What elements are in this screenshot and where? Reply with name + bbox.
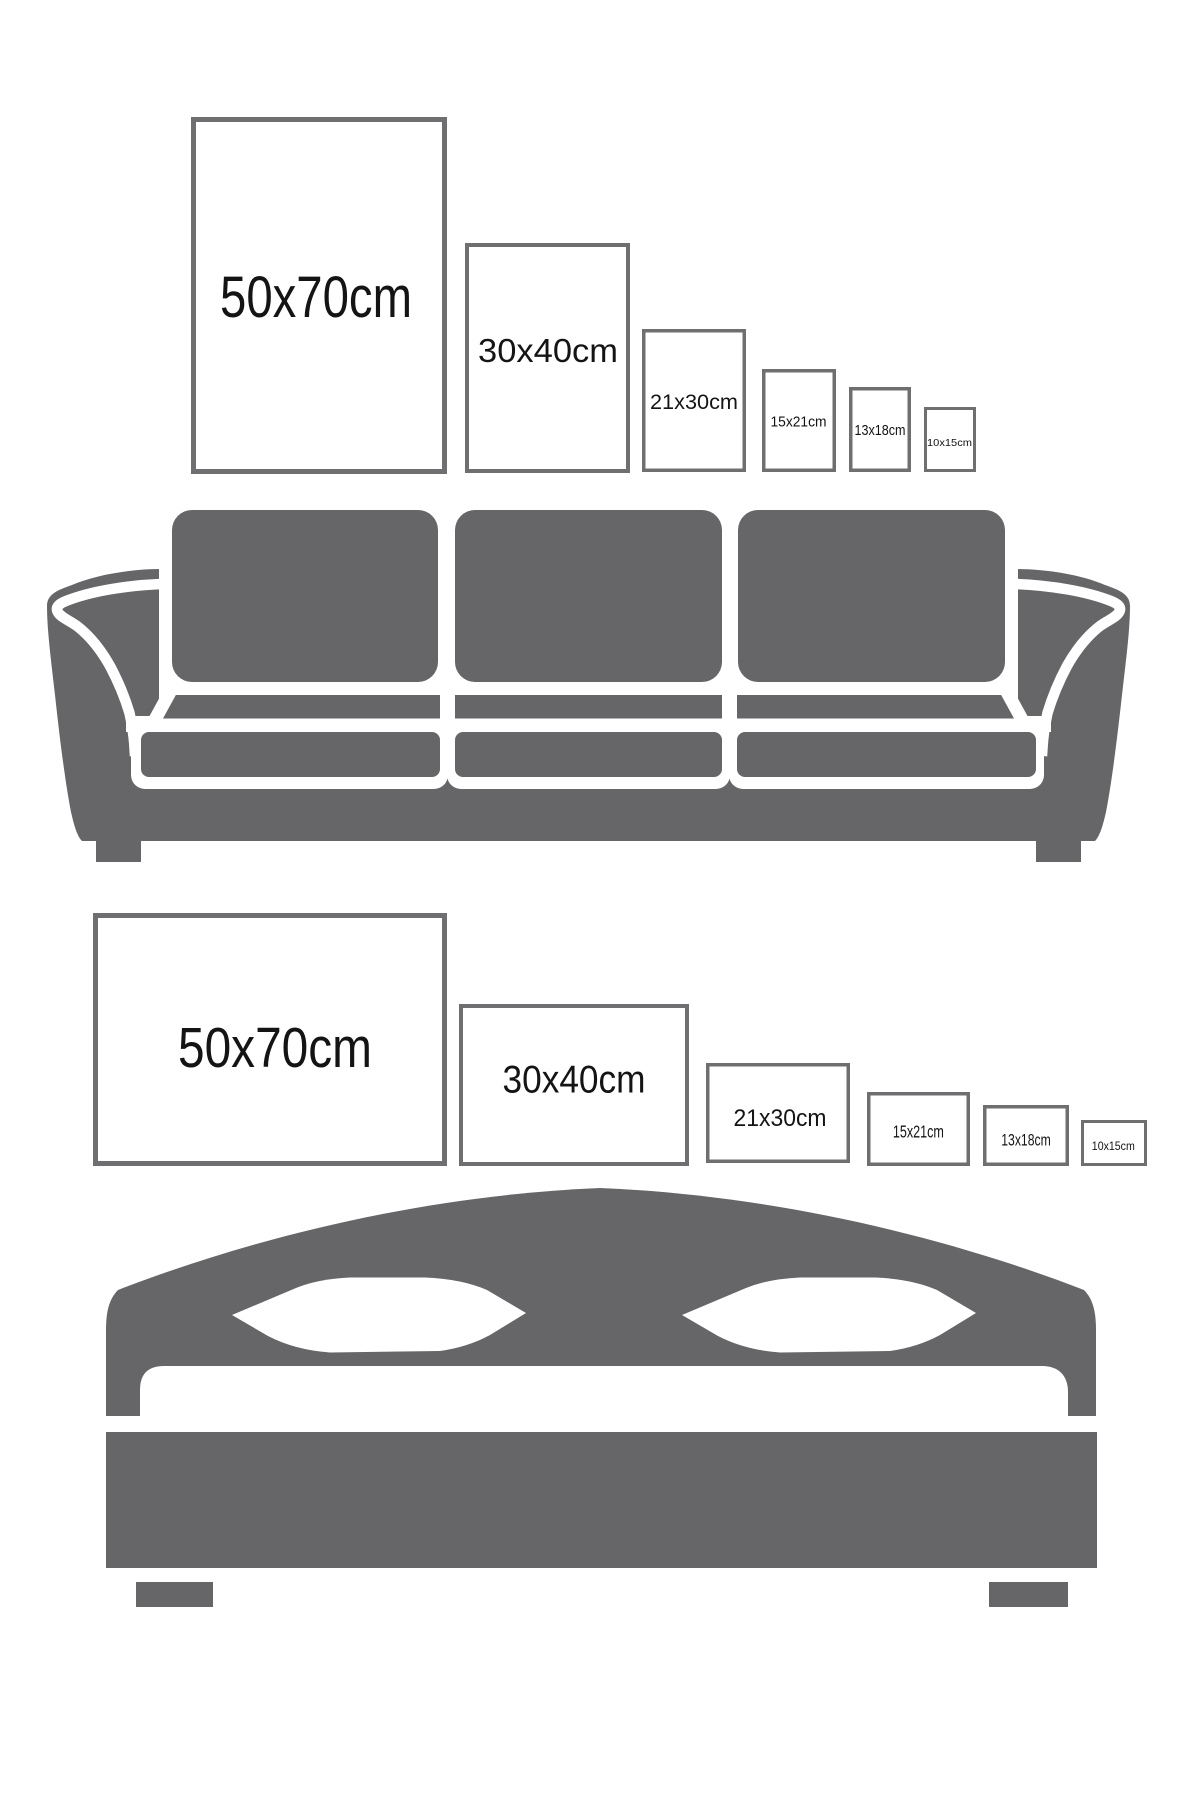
svg-text:30x40cm: 30x40cm [478,332,618,369]
svg-text:30x40cm: 30x40cm [503,1059,646,1102]
svg-text:21x30cm: 21x30cm [650,391,738,414]
svg-text:10x15cm: 10x15cm [927,437,972,449]
svg-text:21x30cm: 21x30cm [734,1105,827,1132]
svg-text:50x70cm: 50x70cm [220,265,412,330]
svg-text:10x15cm: 10x15cm [1092,1139,1135,1153]
svg-text:13x18cm: 13x18cm [1001,1131,1051,1150]
svg-text:13x18cm: 13x18cm [855,423,906,439]
svg-text:15x21cm: 15x21cm [893,1121,944,1141]
svg-text:15x21cm: 15x21cm [771,414,827,431]
svg-text:50x70cm: 50x70cm [178,1016,372,1080]
